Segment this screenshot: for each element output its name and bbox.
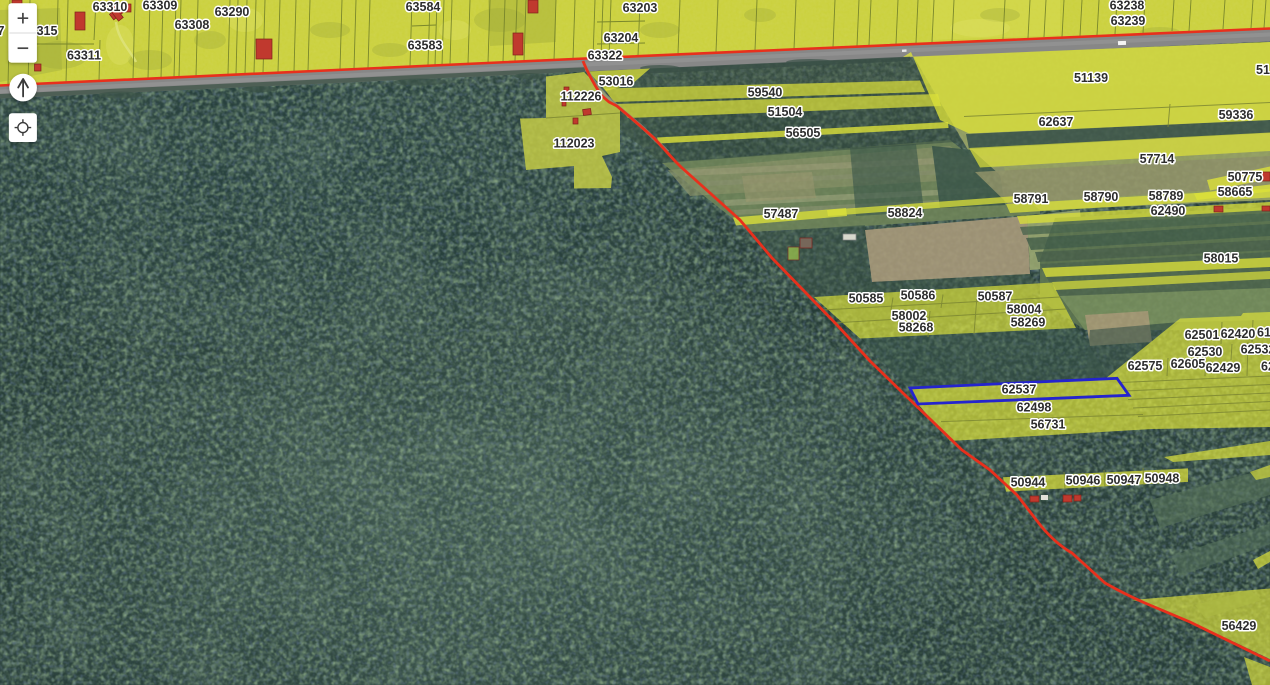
svg-text:57714: 57714 — [1140, 152, 1175, 166]
svg-text:58004: 58004 — [1007, 303, 1042, 317]
svg-text:63311: 63311 — [67, 49, 101, 63]
svg-text:63322: 63322 — [588, 49, 623, 63]
svg-text:63584: 63584 — [406, 0, 441, 14]
svg-text:62: 62 — [1261, 360, 1270, 374]
svg-text:57487: 57487 — [764, 207, 799, 221]
svg-text:63290: 63290 — [215, 5, 250, 19]
svg-text:58791: 58791 — [1014, 192, 1049, 206]
svg-text:58824: 58824 — [888, 206, 923, 220]
svg-text:58015: 58015 — [1204, 252, 1239, 266]
svg-text:50944: 50944 — [1011, 476, 1046, 490]
svg-text:62605: 62605 — [1171, 357, 1206, 371]
svg-text:58789: 58789 — [1149, 189, 1184, 203]
svg-text:51504: 51504 — [768, 105, 803, 119]
svg-text:62490: 62490 — [1151, 204, 1186, 218]
svg-text:56429: 56429 — [1222, 619, 1257, 633]
svg-text:7: 7 — [0, 24, 5, 38]
svg-text:62429: 62429 — [1206, 361, 1241, 375]
svg-text:63203: 63203 — [623, 1, 658, 15]
svg-text:50775: 50775 — [1228, 170, 1263, 184]
svg-text:51: 51 — [1256, 63, 1270, 77]
svg-text:50947: 50947 — [1107, 473, 1142, 487]
svg-text:56731: 56731 — [1031, 418, 1066, 432]
svg-text:50587: 50587 — [978, 290, 1013, 304]
svg-text:315: 315 — [37, 24, 58, 38]
svg-text:62637: 62637 — [1039, 115, 1074, 129]
svg-text:50948: 50948 — [1145, 472, 1180, 486]
svg-text:59336: 59336 — [1219, 108, 1254, 122]
svg-text:63308: 63308 — [175, 18, 210, 32]
svg-text:50585: 50585 — [849, 292, 884, 306]
svg-text:112226: 112226 — [560, 90, 601, 104]
svg-text:58790: 58790 — [1084, 190, 1119, 204]
svg-text:56505: 56505 — [786, 126, 821, 140]
svg-text:62537: 62537 — [1002, 383, 1037, 397]
svg-text:63239: 63239 — [1111, 14, 1146, 28]
svg-text:61: 61 — [1257, 326, 1270, 340]
svg-text:50946: 50946 — [1066, 474, 1101, 488]
svg-text:112023: 112023 — [553, 137, 594, 151]
svg-text:53016: 53016 — [599, 75, 634, 89]
svg-text:63583: 63583 — [408, 39, 443, 53]
svg-text:63310: 63310 — [93, 0, 128, 14]
svg-text:62498: 62498 — [1017, 401, 1052, 415]
svg-text:62575: 62575 — [1128, 359, 1163, 373]
svg-text:63238: 63238 — [1110, 0, 1145, 13]
svg-text:58268: 58268 — [899, 321, 934, 335]
svg-text:62532: 62532 — [1241, 343, 1270, 357]
svg-text:62501: 62501 — [1185, 328, 1220, 342]
svg-text:63309: 63309 — [143, 0, 178, 13]
svg-text:51139: 51139 — [1074, 71, 1108, 85]
svg-text:58665: 58665 — [1218, 185, 1253, 199]
svg-text:62420: 62420 — [1221, 327, 1256, 341]
svg-text:50586: 50586 — [901, 289, 936, 303]
svg-text:59540: 59540 — [748, 86, 783, 100]
svg-text:58269: 58269 — [1011, 316, 1046, 330]
svg-text:63204: 63204 — [604, 31, 639, 45]
